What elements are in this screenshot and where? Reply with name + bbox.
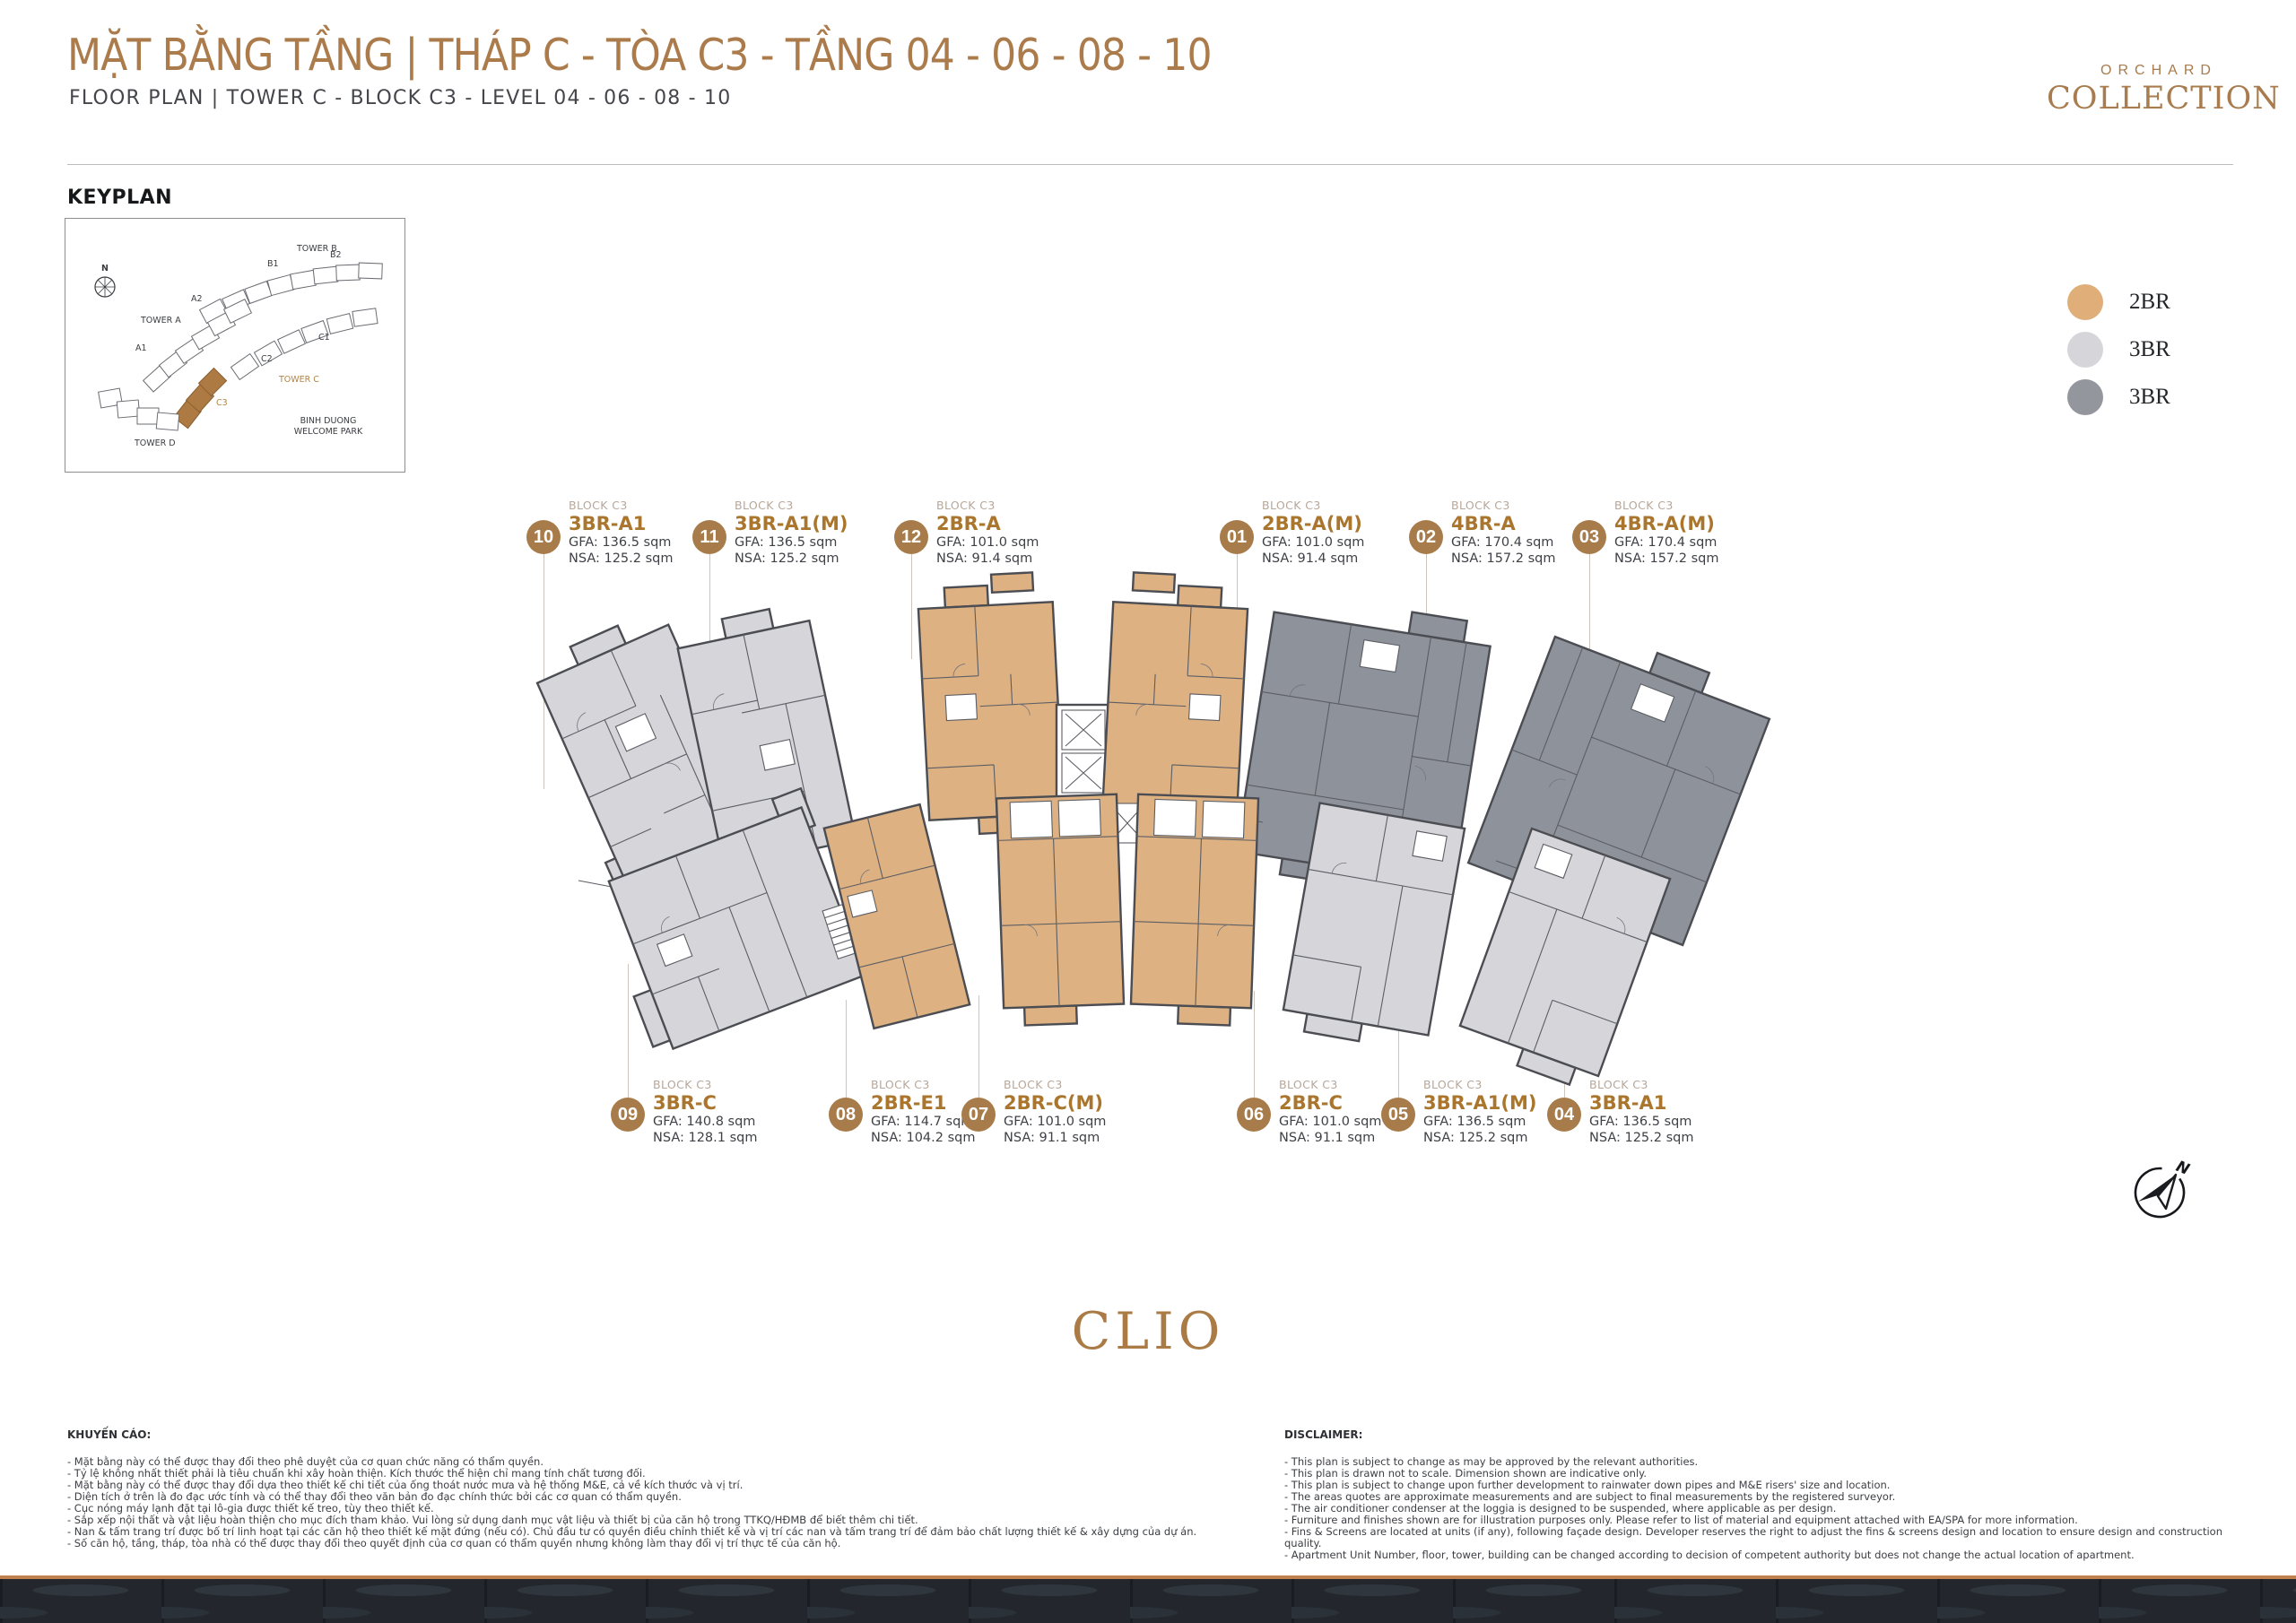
- keyplan-label-c1: C1: [318, 333, 330, 343]
- plan-unit-2br-e1: [824, 804, 970, 1028]
- unit-nsa: NSA: 125.2 sqm: [1589, 1131, 1693, 1147]
- unit-block: BLOCK C3: [1614, 499, 1718, 512]
- unit-nsa: NSA: 91.1 sqm: [1279, 1131, 1381, 1147]
- unit-number-badge: 11: [692, 520, 726, 554]
- plan-lift-core: [1057, 705, 1110, 798]
- unit-number-badge: 03: [1572, 520, 1606, 554]
- unit-number-badge: 02: [1409, 520, 1443, 554]
- keyplan-label-c3: C3: [216, 398, 228, 408]
- unit-name: 3BR-A1: [569, 512, 673, 535]
- callout-unit-04: 04 BLOCK C3 3BR-A1 GFA: 136.5 sqm NSA: 1…: [1547, 1078, 1693, 1146]
- keyplan-map: N: [65, 218, 405, 473]
- unit-name: 3BR-C: [653, 1091, 757, 1115]
- unit-block: BLOCK C3: [653, 1078, 757, 1091]
- legend-label: 3BR: [2129, 385, 2170, 410]
- unit-nsa: NSA: 125.2 sqm: [1423, 1131, 1536, 1147]
- keyplan-label-a2: A2: [191, 294, 203, 304]
- unit-name: 4BR-A(M): [1614, 512, 1718, 535]
- brand-logo: ORCHARD COLLECTION: [2047, 63, 2271, 117]
- advisory-vietnamese: KHUYẾN CÁO: - Mặt bằng này có thể được t…: [67, 1429, 1260, 1549]
- legend-swatch-3br-dark: [2067, 379, 2103, 415]
- unit-gfa: GFA: 101.0 sqm: [936, 535, 1039, 551]
- brand-collection: COLLECTION: [2047, 81, 2271, 117]
- unit-number-badge: 07: [961, 1098, 996, 1132]
- legend-item-3br-dark: 3BR: [2067, 379, 2170, 415]
- unit-name: 4BR-A: [1451, 512, 1555, 535]
- unit-gfa: GFA: 170.4 sqm: [1451, 535, 1555, 551]
- unit-name: 2BR-A: [936, 512, 1039, 535]
- disclaimer-line: - Apartment Unit Number, floor, tower, b…: [1284, 1549, 2253, 1561]
- unit-block: BLOCK C3: [1279, 1078, 1381, 1091]
- keyplan-label-b1: B1: [267, 259, 279, 269]
- callout-unit-10: 10 BLOCK C3 3BR-A1 GFA: 136.5 sqm NSA: 1…: [526, 499, 673, 567]
- disclaimer-line: - Fins & Screens are located at units (i…: [1284, 1526, 2253, 1549]
- unit-gfa: GFA: 136.5 sqm: [1423, 1115, 1536, 1131]
- unit-name: 3BR-A1(M): [735, 512, 848, 535]
- callout-unit-02: 02 BLOCK C3 4BR-A GFA: 170.4 sqm NSA: 15…: [1409, 499, 1555, 567]
- keyplan-label-b2: B2: [330, 250, 342, 260]
- unit-name: 2BR-C: [1279, 1091, 1381, 1115]
- unit-name: 3BR-A1: [1589, 1091, 1693, 1115]
- unit-nsa: NSA: 91.4 sqm: [1262, 551, 1364, 568]
- page-title: MẶT BẰNG TẦNG | THÁP C - TÒA C3 - TẦNG 0…: [67, 30, 1212, 81]
- keyplan-heading: KEYPLAN: [67, 187, 172, 209]
- callout-unit-03: 03 BLOCK C3 4BR-A(M) GFA: 170.4 sqm NSA:…: [1572, 499, 1718, 567]
- unit-gfa: GFA: 136.5 sqm: [569, 535, 673, 551]
- callout-unit-05: 05 BLOCK C3 3BR-A1(M) GFA: 136.5 sqm NSA…: [1381, 1078, 1536, 1146]
- header-divider: [67, 164, 2233, 165]
- advisory-heading: KHUYẾN CÁO:: [67, 1429, 1260, 1441]
- floor-plan-page: MẶT BẰNG TẦNG | THÁP C - TÒA C3 - TẦNG 0…: [0, 0, 2296, 1623]
- unit-block: BLOCK C3: [871, 1078, 975, 1091]
- callout-unit-01: 01 BLOCK C3 2BR-A(M) GFA: 101.0 sqm NSA:…: [1220, 499, 1364, 567]
- unit-nsa: NSA: 157.2 sqm: [1614, 551, 1718, 568]
- callout-unit-09: 09 BLOCK C3 3BR-C GFA: 140.8 sqm NSA: 12…: [611, 1078, 757, 1146]
- callout-unit-12: 12 BLOCK C3 2BR-A GFA: 101.0 sqm NSA: 91…: [894, 499, 1039, 567]
- unit-gfa: GFA: 136.5 sqm: [1589, 1115, 1693, 1131]
- keyplan-label-tower-a: TOWER A: [140, 316, 181, 325]
- unit-block: BLOCK C3: [735, 499, 848, 512]
- unit-number-badge: 06: [1237, 1098, 1271, 1132]
- unit-nsa: NSA: 91.4 sqm: [936, 551, 1039, 568]
- callout-unit-11: 11 BLOCK C3 3BR-A1(M) GFA: 136.5 sqm NSA…: [692, 499, 848, 567]
- keyplan-tower-d: [99, 388, 179, 430]
- unit-number-badge: 08: [829, 1098, 863, 1132]
- svg-text:N: N: [101, 264, 109, 273]
- legend-label: 2BR: [2129, 290, 2170, 315]
- unit-block: BLOCK C3: [1451, 499, 1555, 512]
- legend-item-3br-light: 3BR: [2067, 332, 2170, 368]
- north-compass-icon: N: [2127, 1155, 2199, 1227]
- unit-number-badge: 12: [894, 520, 928, 554]
- unit-name: 2BR-E1: [871, 1091, 975, 1115]
- unit-block: BLOCK C3: [1423, 1078, 1536, 1091]
- unit-gfa: GFA: 101.0 sqm: [1279, 1115, 1381, 1131]
- callout-unit-07: 07 BLOCK C3 2BR-C(M) GFA: 101.0 sqm NSA:…: [961, 1078, 1106, 1146]
- footer-texture-band: [0, 1575, 2296, 1623]
- unit-nsa: NSA: 91.1 sqm: [1004, 1131, 1106, 1147]
- unit-number-badge: 09: [611, 1098, 645, 1132]
- unit-block: BLOCK C3: [1004, 1078, 1106, 1091]
- brand-orchard: ORCHARD: [2047, 63, 2271, 79]
- legend-swatch-2br: [2067, 284, 2103, 320]
- keyplan-label-tower-d: TOWER D: [134, 438, 176, 448]
- keyplan-label-park-2: WELCOME PARK: [294, 427, 363, 437]
- unit-number-badge: 01: [1220, 520, 1254, 554]
- keyplan-svg: N: [65, 219, 404, 472]
- floor-plan-drawing: [502, 565, 1848, 1121]
- unit-block: BLOCK C3: [1589, 1078, 1693, 1091]
- disclaimer-heading: DISCLAIMER:: [1284, 1429, 2253, 1441]
- keyplan-tower-a: [143, 299, 252, 392]
- legend-item-2br: 2BR: [2067, 284, 2170, 320]
- unit-gfa: GFA: 101.0 sqm: [1262, 535, 1364, 551]
- unit-name: 3BR-A1(M): [1423, 1091, 1536, 1115]
- unit-nsa: NSA: 128.1 sqm: [653, 1131, 757, 1147]
- unit-block: BLOCK C3: [1262, 499, 1364, 512]
- unit-name: 2BR-A(M): [1262, 512, 1364, 535]
- legend-label: 3BR: [2129, 337, 2170, 362]
- keyplan-label-park-1: BINH DUONG: [300, 416, 357, 426]
- unit-nsa: NSA: 125.2 sqm: [569, 551, 673, 568]
- keyplan-label-tower-c: TOWER C: [278, 375, 319, 385]
- unit-block: BLOCK C3: [569, 499, 673, 512]
- disclaimer-english: DISCLAIMER: - This plan is subject to ch…: [1284, 1429, 2253, 1561]
- unit-gfa: GFA: 114.7 sqm: [871, 1115, 975, 1131]
- unit-gfa: GFA: 136.5 sqm: [735, 535, 848, 551]
- unit-gfa: GFA: 170.4 sqm: [1614, 535, 1718, 551]
- project-name: CLIO: [1022, 1302, 1274, 1361]
- unit-nsa: NSA: 125.2 sqm: [735, 551, 848, 568]
- plan-unit-2br-c: [1130, 794, 1258, 1027]
- unit-gfa: GFA: 140.8 sqm: [653, 1115, 757, 1131]
- page-subtitle: FLOOR PLAN | TOWER C - BLOCK C3 - LEVEL …: [69, 87, 731, 109]
- keyplan-label-c2: C2: [261, 354, 273, 364]
- unit-nsa: NSA: 104.2 sqm: [871, 1131, 975, 1147]
- unit-name: 2BR-C(M): [1004, 1091, 1106, 1115]
- keyplan-label-a1: A1: [135, 343, 147, 353]
- unit-type-legend: 2BR 3BR 3BR: [2067, 284, 2170, 427]
- unit-gfa: GFA: 101.0 sqm: [1004, 1115, 1106, 1131]
- callout-unit-08: 08 BLOCK C3 2BR-E1 GFA: 114.7 sqm NSA: 1…: [829, 1078, 975, 1146]
- advisory-line: - Số căn hộ, tầng, tháp, tòa nhà có thể …: [67, 1538, 1260, 1549]
- keyplan-tower-c: [230, 308, 378, 380]
- unit-number-badge: 05: [1381, 1098, 1415, 1132]
- plan-unit-2br-cm: [996, 794, 1125, 1027]
- unit-block: BLOCK C3: [936, 499, 1039, 512]
- keyplan-compass-icon: N: [95, 264, 115, 297]
- unit-number-badge: 04: [1547, 1098, 1581, 1132]
- callout-unit-06: 06 BLOCK C3 2BR-C GFA: 101.0 sqm NSA: 91…: [1237, 1078, 1381, 1146]
- unit-nsa: NSA: 157.2 sqm: [1451, 551, 1555, 568]
- unit-number-badge: 10: [526, 520, 561, 554]
- legend-swatch-3br-light: [2067, 332, 2103, 368]
